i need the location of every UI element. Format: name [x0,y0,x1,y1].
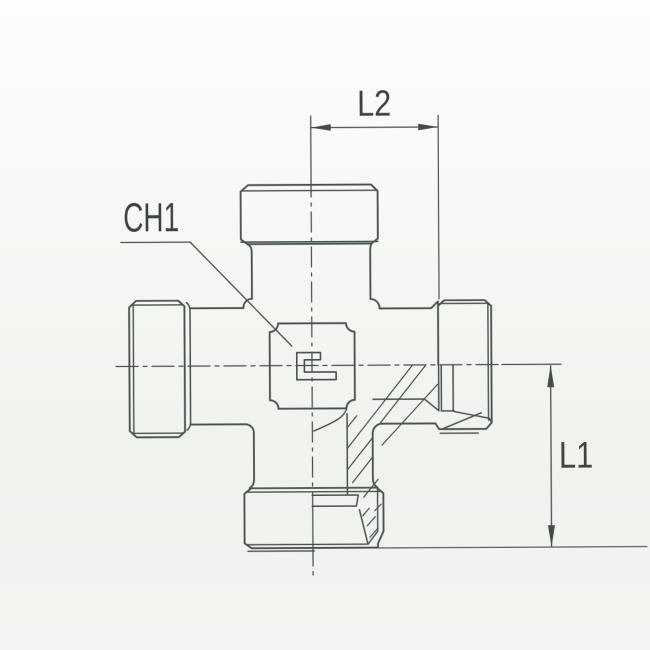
svg-text:L1: L1 [559,435,593,477]
svg-text:CH1: CH1 [123,196,179,241]
svg-text:L2: L2 [357,83,391,124]
